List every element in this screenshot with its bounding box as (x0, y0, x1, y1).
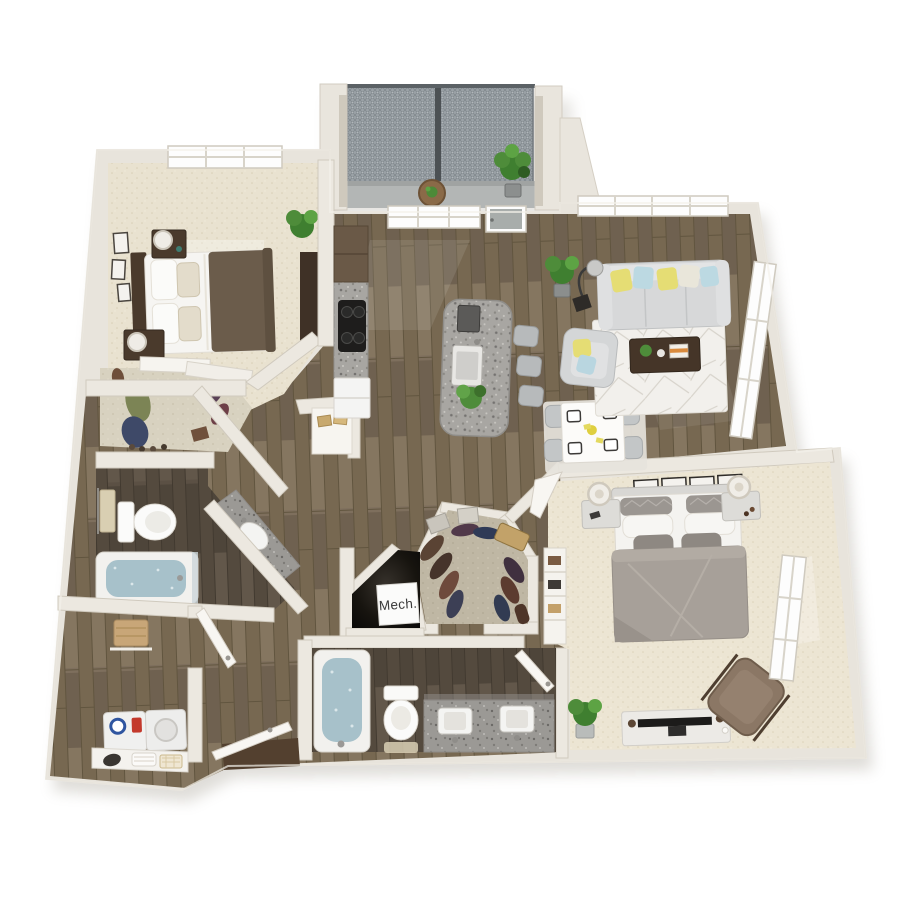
master-pillow-gray (620, 496, 673, 516)
bedroom1-nightstand-top (152, 230, 186, 258)
shower-glass (192, 552, 198, 604)
master-linen-shelves (544, 548, 566, 644)
interior-wall (340, 548, 354, 636)
bed1-pillow (151, 259, 178, 300)
balcony-screen-mullion (435, 84, 441, 184)
bed1-accent-pillow (178, 306, 201, 341)
interior-wall (96, 452, 214, 468)
place-setting (604, 439, 617, 450)
vanity-faucet (514, 735, 520, 741)
laundry-counter (92, 748, 188, 772)
interior-wall (318, 160, 334, 346)
master-bathtub (314, 650, 370, 752)
washer-dial (111, 719, 125, 733)
living-armchair (559, 327, 619, 388)
bar-stool (513, 325, 539, 347)
balcony-post-right-shade (535, 96, 543, 206)
interior-wall (298, 640, 312, 760)
master-pillow-white (622, 514, 673, 538)
patio-table (419, 180, 445, 206)
bathtub-faucet (338, 741, 345, 748)
bathroom2-toilet (118, 502, 176, 542)
sofa-pillow-yellow (610, 268, 634, 293)
master-vanity (424, 694, 554, 752)
floor-plan-render: Mech. (0, 0, 900, 900)
balcony-screen-left (347, 86, 437, 183)
sofa-pillow-pattern (678, 264, 700, 288)
mech-label: Mech. (378, 596, 417, 614)
dryer (145, 709, 186, 750)
bedroom1-lamp (128, 333, 146, 351)
balcony-screen-rail (345, 84, 535, 88)
master-bathroom (312, 648, 556, 753)
vanity-faucet (242, 518, 247, 523)
sofa-pillow-blue (699, 265, 720, 287)
vanity-faucet (452, 737, 458, 743)
master-toilet (384, 686, 418, 753)
balcony-post-left-shade (339, 95, 347, 207)
kitchen-island (440, 299, 513, 437)
laundry-shelf-basket (110, 620, 152, 649)
bed1-accent-pillow (177, 262, 200, 297)
kitchen-window (388, 206, 480, 228)
living-window-top (578, 196, 728, 216)
interior-wall (86, 380, 246, 396)
towel-stack (132, 753, 156, 766)
sofa (597, 260, 731, 331)
interior-wall (188, 668, 202, 762)
sofa-pillow-blue (633, 266, 654, 289)
interior-wall (556, 648, 568, 758)
door-knob (268, 728, 273, 733)
bedroom1-dresser (300, 252, 318, 344)
espresso-machine (457, 305, 480, 332)
place-setting (567, 410, 580, 421)
interior-wall (304, 636, 524, 648)
master-bedroom (530, 462, 856, 750)
bath-mat (384, 742, 418, 753)
balcony-door (486, 206, 526, 232)
vanity-backsplash (424, 694, 554, 701)
washer (103, 711, 146, 752)
bar-stool (518, 385, 544, 407)
bar-stool (516, 355, 542, 377)
bathtub-faucet (177, 575, 183, 581)
nook-box (317, 415, 331, 427)
bathroom2-towel-rack (98, 488, 115, 534)
magazine-stripe (670, 348, 688, 353)
sofa-pillow-yellow (656, 267, 679, 291)
dryer-door (155, 719, 178, 742)
balcony (320, 84, 600, 210)
kitchen-cooktop (338, 300, 366, 352)
detergent-bottle (132, 717, 143, 732)
floor-plan-canvas: Mech. (0, 0, 900, 900)
bathroom2-bathtub (96, 552, 198, 604)
bedroom1-nightstand-bottom (124, 330, 164, 360)
coffee-table (629, 337, 700, 373)
balcony-side-wall (560, 118, 600, 206)
bedroom1-lamp (154, 231, 172, 249)
place-setting (568, 442, 581, 453)
walkin-box (457, 507, 478, 524)
